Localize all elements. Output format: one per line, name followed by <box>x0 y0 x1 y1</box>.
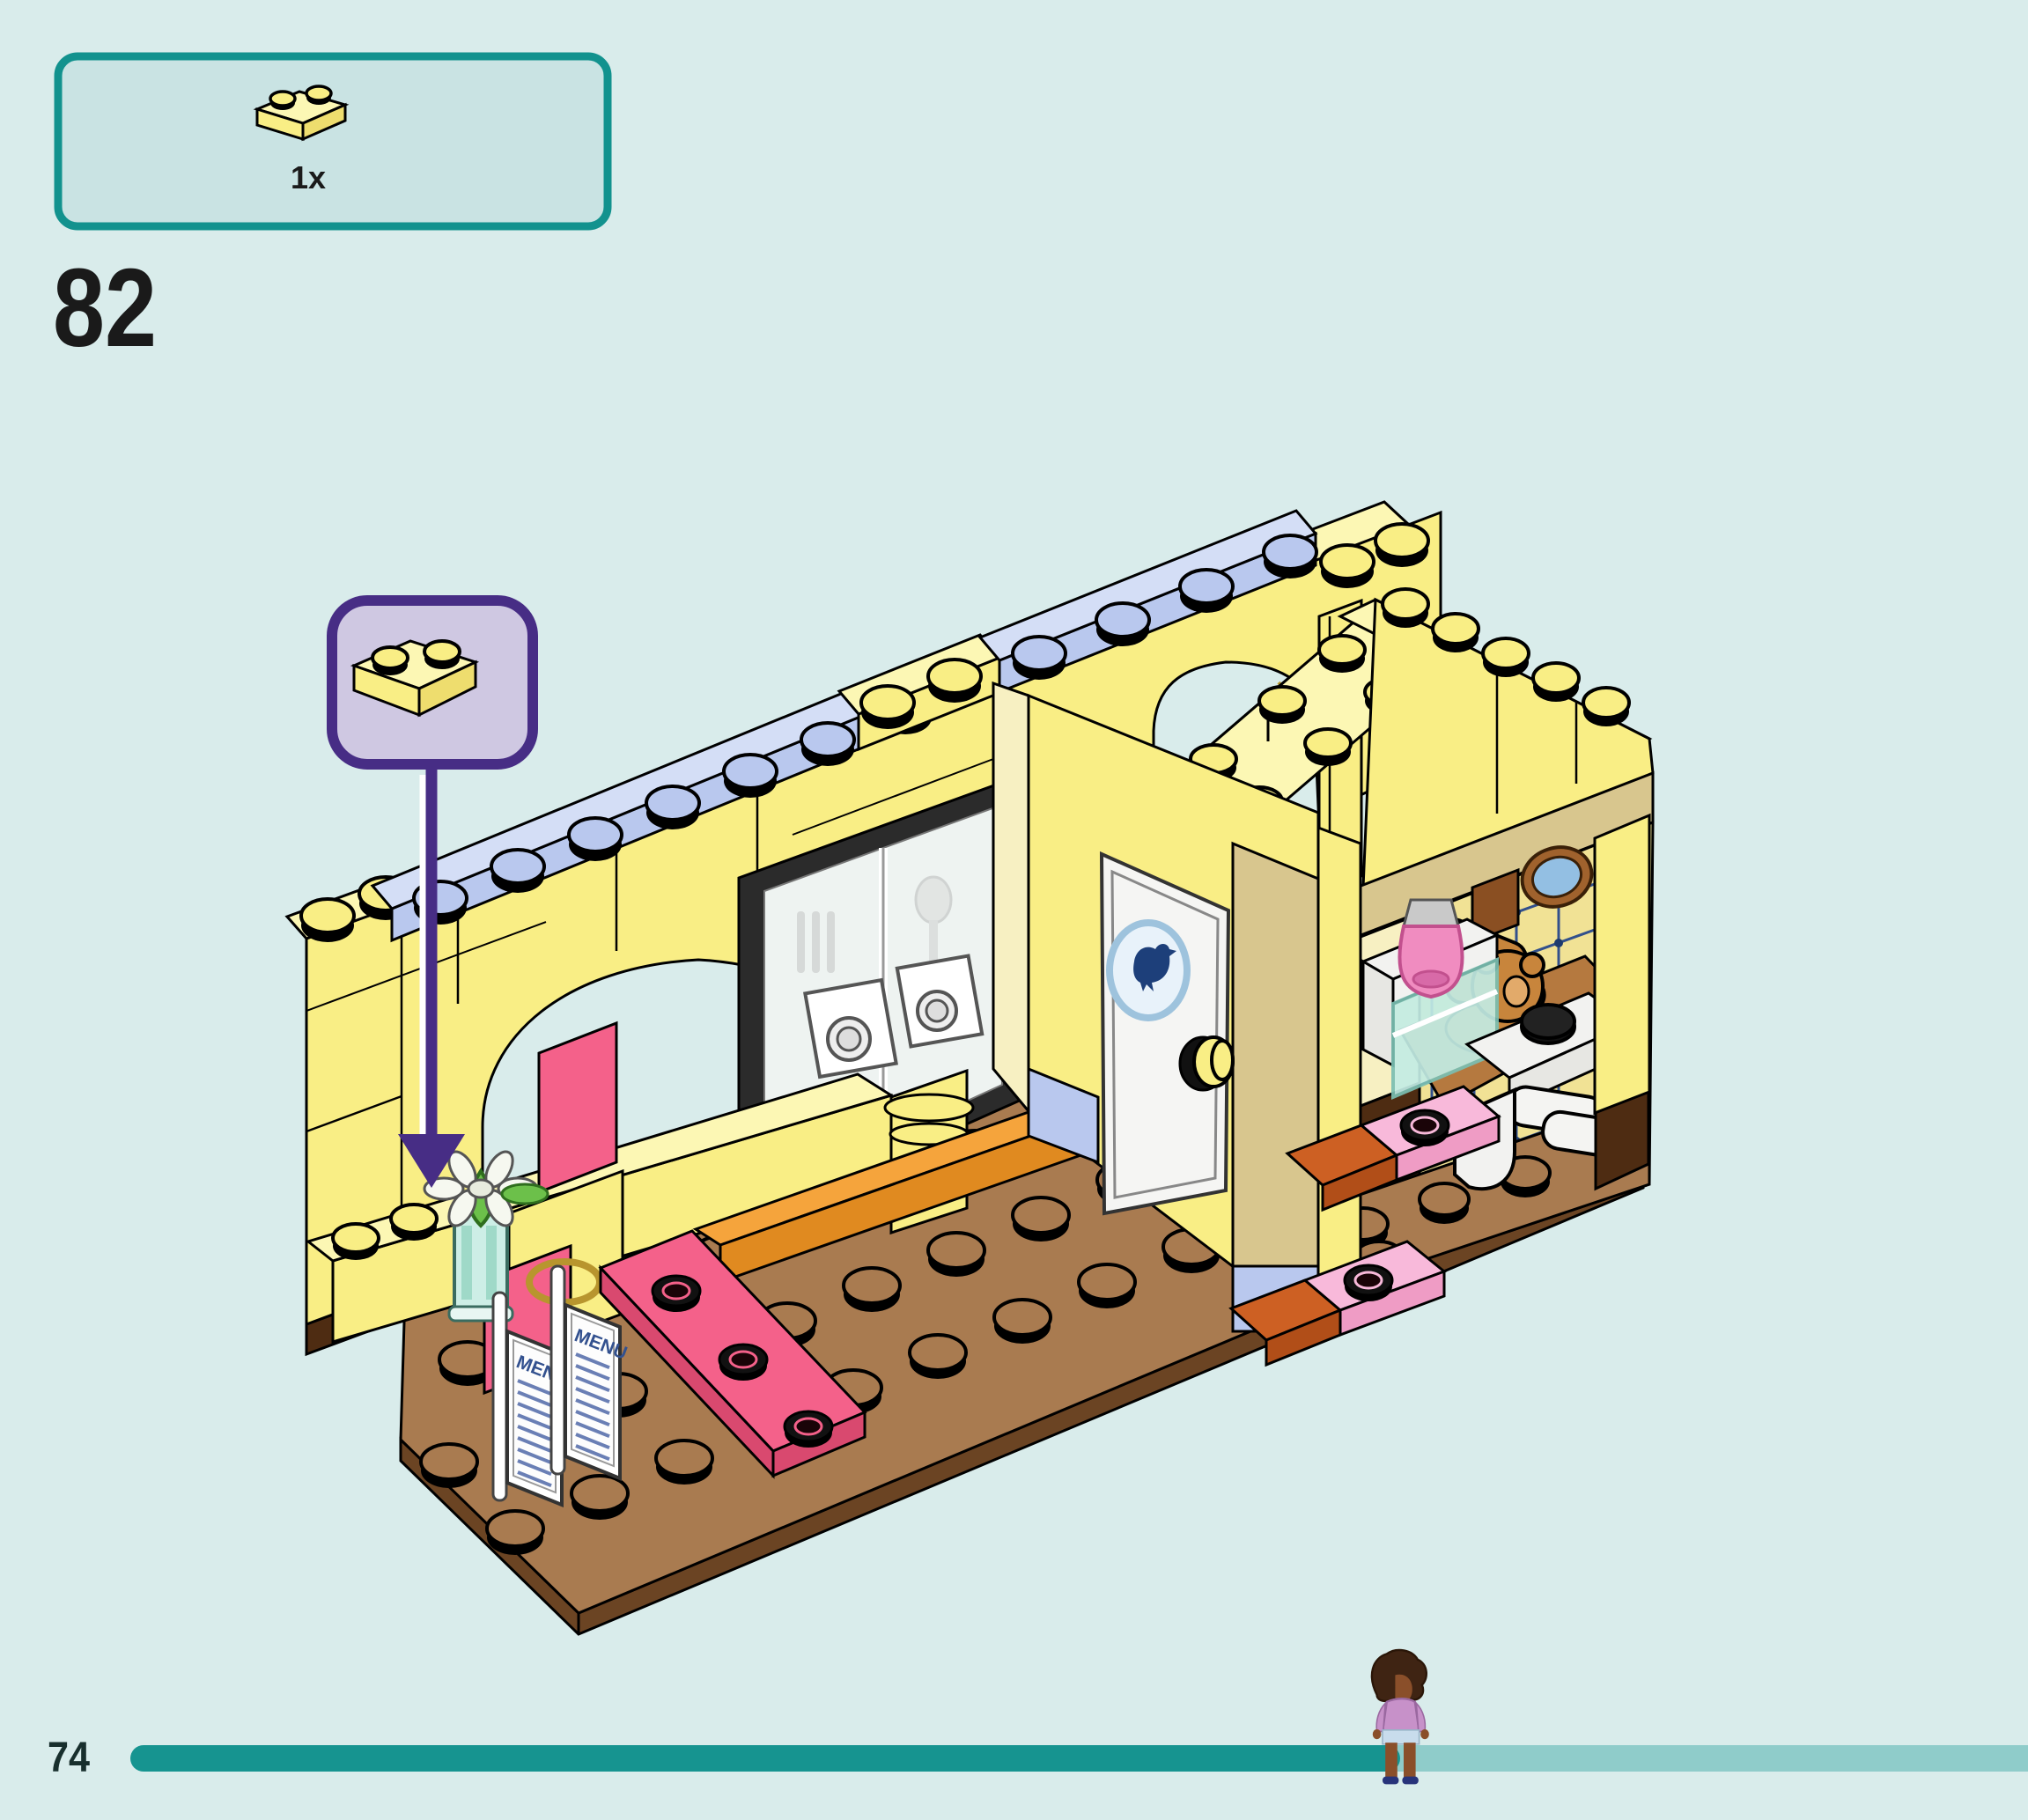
svg-text:1x: 1x <box>291 159 326 195</box>
svg-text:82: 82 <box>53 246 157 370</box>
svg-text:74: 74 <box>48 1735 90 1781</box>
